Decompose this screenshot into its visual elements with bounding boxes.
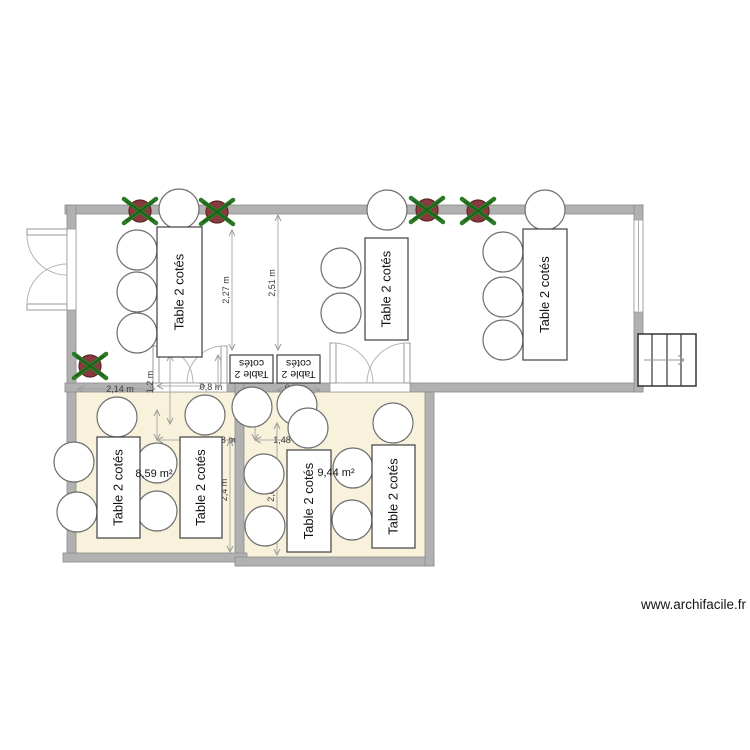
chair-icon[interactable]	[232, 387, 272, 427]
door-leaf[interactable]	[221, 346, 227, 383]
chair-icon[interactable]	[117, 313, 157, 353]
chair-icon[interactable]	[483, 232, 523, 272]
door-leaf[interactable]	[330, 343, 336, 383]
table[interactable]: Table 2cotés	[230, 355, 273, 383]
chair-icon[interactable]	[321, 293, 361, 333]
table[interactable]: Table 2 cotés	[157, 227, 202, 357]
table[interactable]: Table 2 cotés	[365, 238, 408, 340]
plant-icon[interactable]	[462, 199, 494, 223]
floor-plan-canvas: 2,14 m0,8 m0,8 m1,48 m1,48 m2,27 m2,51 m…	[0, 0, 750, 750]
plant-icon[interactable]	[201, 200, 233, 224]
table[interactable]: Table 2 cotés	[287, 450, 331, 552]
table[interactable]: Table 2 cotés	[180, 437, 222, 538]
dimension-label: 2,51 m	[267, 269, 277, 297]
chair-icon[interactable]	[321, 248, 361, 288]
table-label: Table 2 cotés	[537, 256, 552, 333]
chair-icon[interactable]	[525, 190, 565, 230]
dimension-label: 2,27 m	[221, 276, 231, 304]
dimension-label: 1,2 m	[145, 371, 155, 394]
table[interactable]: Table 2 cotés	[97, 437, 140, 538]
door-leaf[interactable]	[27, 229, 67, 235]
plant-icon[interactable]	[74, 354, 106, 378]
door-leaf[interactable]	[27, 304, 67, 310]
area-label: 8,59 m²	[135, 468, 173, 480]
wall[interactable]	[425, 392, 434, 566]
chair-icon[interactable]	[483, 277, 523, 317]
door-leaf[interactable]	[404, 343, 410, 383]
dimension-label: 2,14 m	[106, 384, 134, 394]
table[interactable]: Table 2 cotés	[372, 445, 415, 548]
chair-icon[interactable]	[288, 408, 328, 448]
plant-icon[interactable]	[124, 199, 156, 223]
floor-plan: 2,14 m0,8 m0,8 m1,48 m1,48 m2,27 m2,51 m…	[0, 0, 750, 750]
chair-icon[interactable]	[245, 506, 285, 546]
table[interactable]: Table 2 cotés	[523, 229, 567, 360]
table-label: Table 2 cotés	[379, 250, 394, 327]
chair-icon[interactable]	[54, 442, 94, 482]
chair-icon[interactable]	[97, 397, 137, 437]
table-label: Table 2 cotés	[193, 449, 208, 526]
table-label: Table 2 cotés	[172, 253, 187, 330]
chair-icon[interactable]	[483, 320, 523, 360]
door-gap	[330, 383, 410, 392]
table-label: Table 2 cotés	[301, 462, 316, 539]
table-label: cotés	[239, 357, 264, 369]
chair-icon[interactable]	[185, 395, 225, 435]
wall[interactable]	[235, 557, 434, 566]
wall[interactable]	[63, 553, 247, 562]
chair-icon[interactable]	[159, 189, 199, 229]
chair-icon[interactable]	[367, 190, 407, 230]
plant-icon[interactable]	[411, 198, 443, 222]
chair-icon[interactable]	[137, 491, 177, 531]
door-gap	[67, 229, 76, 310]
area-label: 9,44 m²	[317, 467, 355, 479]
table-label: Table 2 cotés	[111, 449, 126, 526]
table-label: Table 2 cotés	[386, 458, 401, 535]
dimension-label: 0,8 m	[200, 382, 223, 392]
chair-icon[interactable]	[332, 500, 372, 540]
watermark: www.archifacile.fr	[640, 597, 747, 612]
table-label: cotés	[286, 357, 311, 369]
table[interactable]: Table 2cotés	[277, 355, 320, 383]
chair-icon[interactable]	[373, 403, 413, 443]
chair-icon[interactable]	[57, 492, 97, 532]
chair-icon[interactable]	[117, 272, 157, 312]
chair-icon[interactable]	[117, 230, 157, 270]
chair-icon[interactable]	[244, 454, 284, 494]
